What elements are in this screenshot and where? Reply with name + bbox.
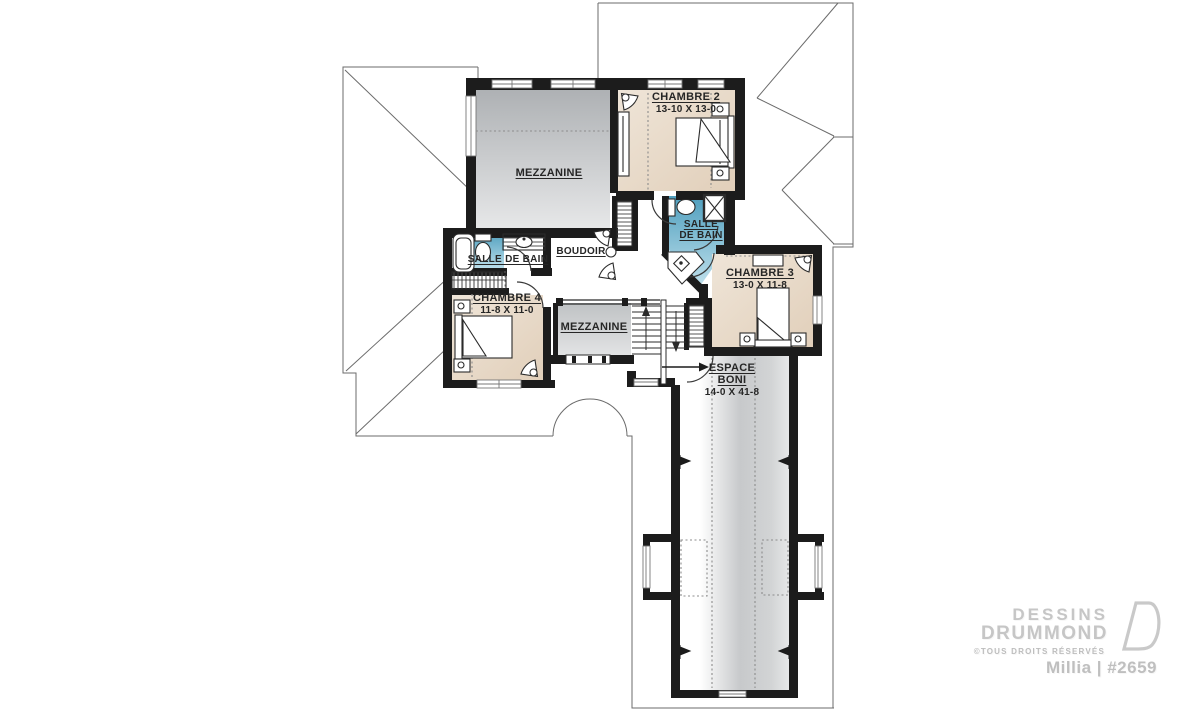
espace-boni-label: ESPACE BONI 14-0 X 41-8 (705, 362, 759, 399)
window (719, 691, 746, 697)
room-dimensions: 13-0 X 11-8 (726, 280, 794, 292)
stairs-down-arrow-icon (672, 311, 680, 352)
chambre3-label: CHAMBRE 3 13-0 X 11-8 (726, 267, 794, 292)
room-name: CHAMBRE 3 (726, 267, 794, 279)
room-dimensions: 13-10 X 13-0 (652, 104, 720, 116)
room-name: CHAMBRE 2 (652, 91, 720, 103)
armchair-icon (599, 263, 616, 280)
nightstand-icon (740, 333, 755, 346)
room-name: SALLE (684, 219, 718, 230)
brand-line1: DESSINS (1012, 605, 1108, 625)
room-name: MEZZANINE (561, 321, 628, 333)
bathtub-icon (453, 234, 474, 272)
window (551, 80, 595, 88)
room-name: DE BAIN (679, 230, 722, 241)
room-name: BOUDOIR (556, 246, 605, 257)
linen-shelves-icon (617, 201, 632, 246)
bed-icon (455, 315, 512, 359)
room-dimensions: 14-0 X 41-8 (705, 387, 759, 399)
toilet-icon (668, 199, 695, 216)
room-name: ESPACE (709, 362, 755, 374)
brand-line2: DRUMMOND (981, 623, 1108, 645)
armchair-icon (594, 230, 611, 247)
room-name: CHAMBRE 4 (473, 292, 541, 304)
window (466, 96, 476, 156)
room-dimensions: 11-8 X 11-0 (473, 305, 541, 317)
stairs-up-arrow-icon (642, 306, 650, 350)
nightstand-icon (712, 167, 729, 180)
window (813, 296, 822, 324)
shower-icon (704, 195, 725, 221)
chambre4-label: CHAMBRE 4 11-8 X 11-0 (473, 292, 541, 317)
salle-de-bain-2-label: SALLE DE BAIN (679, 220, 722, 241)
dresser-icon (753, 255, 783, 266)
entry-arrow-icon (662, 363, 709, 372)
room-name: SALLE DE BAIN (468, 254, 549, 265)
plan-name: Millia | #2659 (1046, 658, 1157, 678)
window (815, 546, 822, 588)
bed-icon (754, 288, 792, 347)
linen-shelves-icon (689, 305, 704, 347)
window (634, 379, 658, 386)
floor-plan: CHAMBRE 2 13-10 X 13-0 MEZZANINE SALLE D… (0, 0, 1200, 711)
brand-rights: ©TOUS DROITS RÉSERVÉS (974, 647, 1105, 656)
side-table-icon (606, 247, 616, 257)
espace-boni-floor (700, 356, 789, 690)
window (648, 80, 682, 88)
nightstand-icon (454, 359, 470, 372)
room-name: BONI (718, 374, 747, 386)
room-name: MEZZANINE (516, 167, 583, 179)
window (477, 380, 521, 388)
salle-de-bain-label: SALLE DE BAIN (468, 255, 549, 266)
chambre2-label: CHAMBRE 2 13-10 X 13-0 (652, 91, 720, 116)
window (643, 546, 650, 588)
bed-icon (676, 116, 734, 168)
brand-logo-icon (1124, 603, 1159, 649)
window (698, 80, 724, 88)
mezzanine-mid-label: MEZZANINE (561, 321, 628, 333)
dresser-icon (618, 112, 629, 176)
sink-vanity-icon (503, 234, 545, 250)
stairs-icon (632, 300, 686, 384)
mezzanine-top-label: MEZZANINE (516, 167, 583, 179)
mezzanine-top-floor (476, 90, 610, 230)
closet-rod-icon (452, 272, 506, 289)
nightstand-icon (454, 300, 470, 313)
boudoir-label: BOUDOIR (556, 247, 605, 258)
nightstand-icon (791, 333, 806, 346)
window (492, 80, 532, 88)
